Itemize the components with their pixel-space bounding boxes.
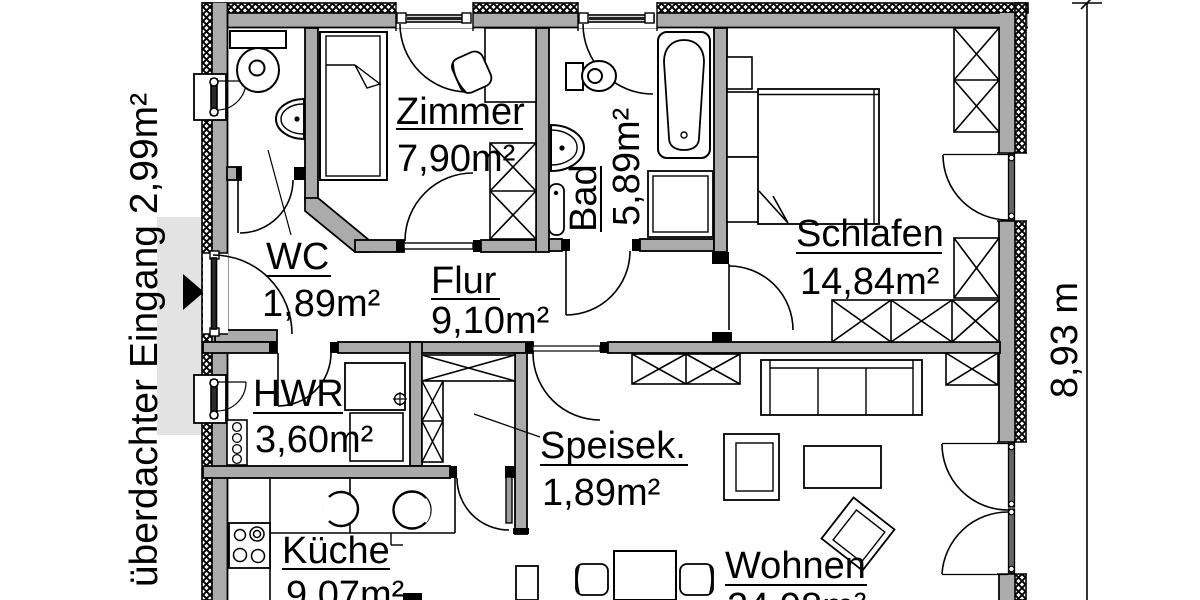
svg-text:Zimmer: Zimmer — [396, 91, 525, 133]
svg-text:Speisek.: Speisek. — [540, 425, 686, 467]
svg-text:14,84m²: 14,84m² — [800, 261, 939, 303]
svg-text:1,89m²: 1,89m² — [262, 283, 380, 325]
svg-text:WC: WC — [266, 236, 329, 278]
svg-text:Wohnen: Wohnen — [725, 545, 866, 587]
svg-text:7,90m²: 7,90m² — [397, 138, 515, 180]
svg-text:überdachter Eingang 2,99m²: überdachter Eingang 2,99m² — [123, 93, 166, 587]
svg-text:Flur: Flur — [431, 260, 497, 302]
svg-text:8,93 m: 8,93 m — [1044, 282, 1086, 398]
svg-text:24,98m²: 24,98m² — [727, 586, 866, 600]
svg-text:Schlafen: Schlafen — [796, 213, 944, 255]
svg-text:HWR: HWR — [253, 373, 344, 415]
svg-text:Küche: Küche — [282, 530, 390, 572]
svg-text:Bad: Bad — [563, 164, 605, 232]
svg-text:9,10m²: 9,10m² — [431, 300, 549, 342]
svg-text:3,60m²: 3,60m² — [255, 419, 373, 461]
svg-text:5,89m²: 5,89m² — [606, 108, 648, 226]
svg-text:1,89m²: 1,89m² — [542, 472, 660, 514]
svg-text:9,07m²: 9,07m² — [286, 574, 404, 600]
